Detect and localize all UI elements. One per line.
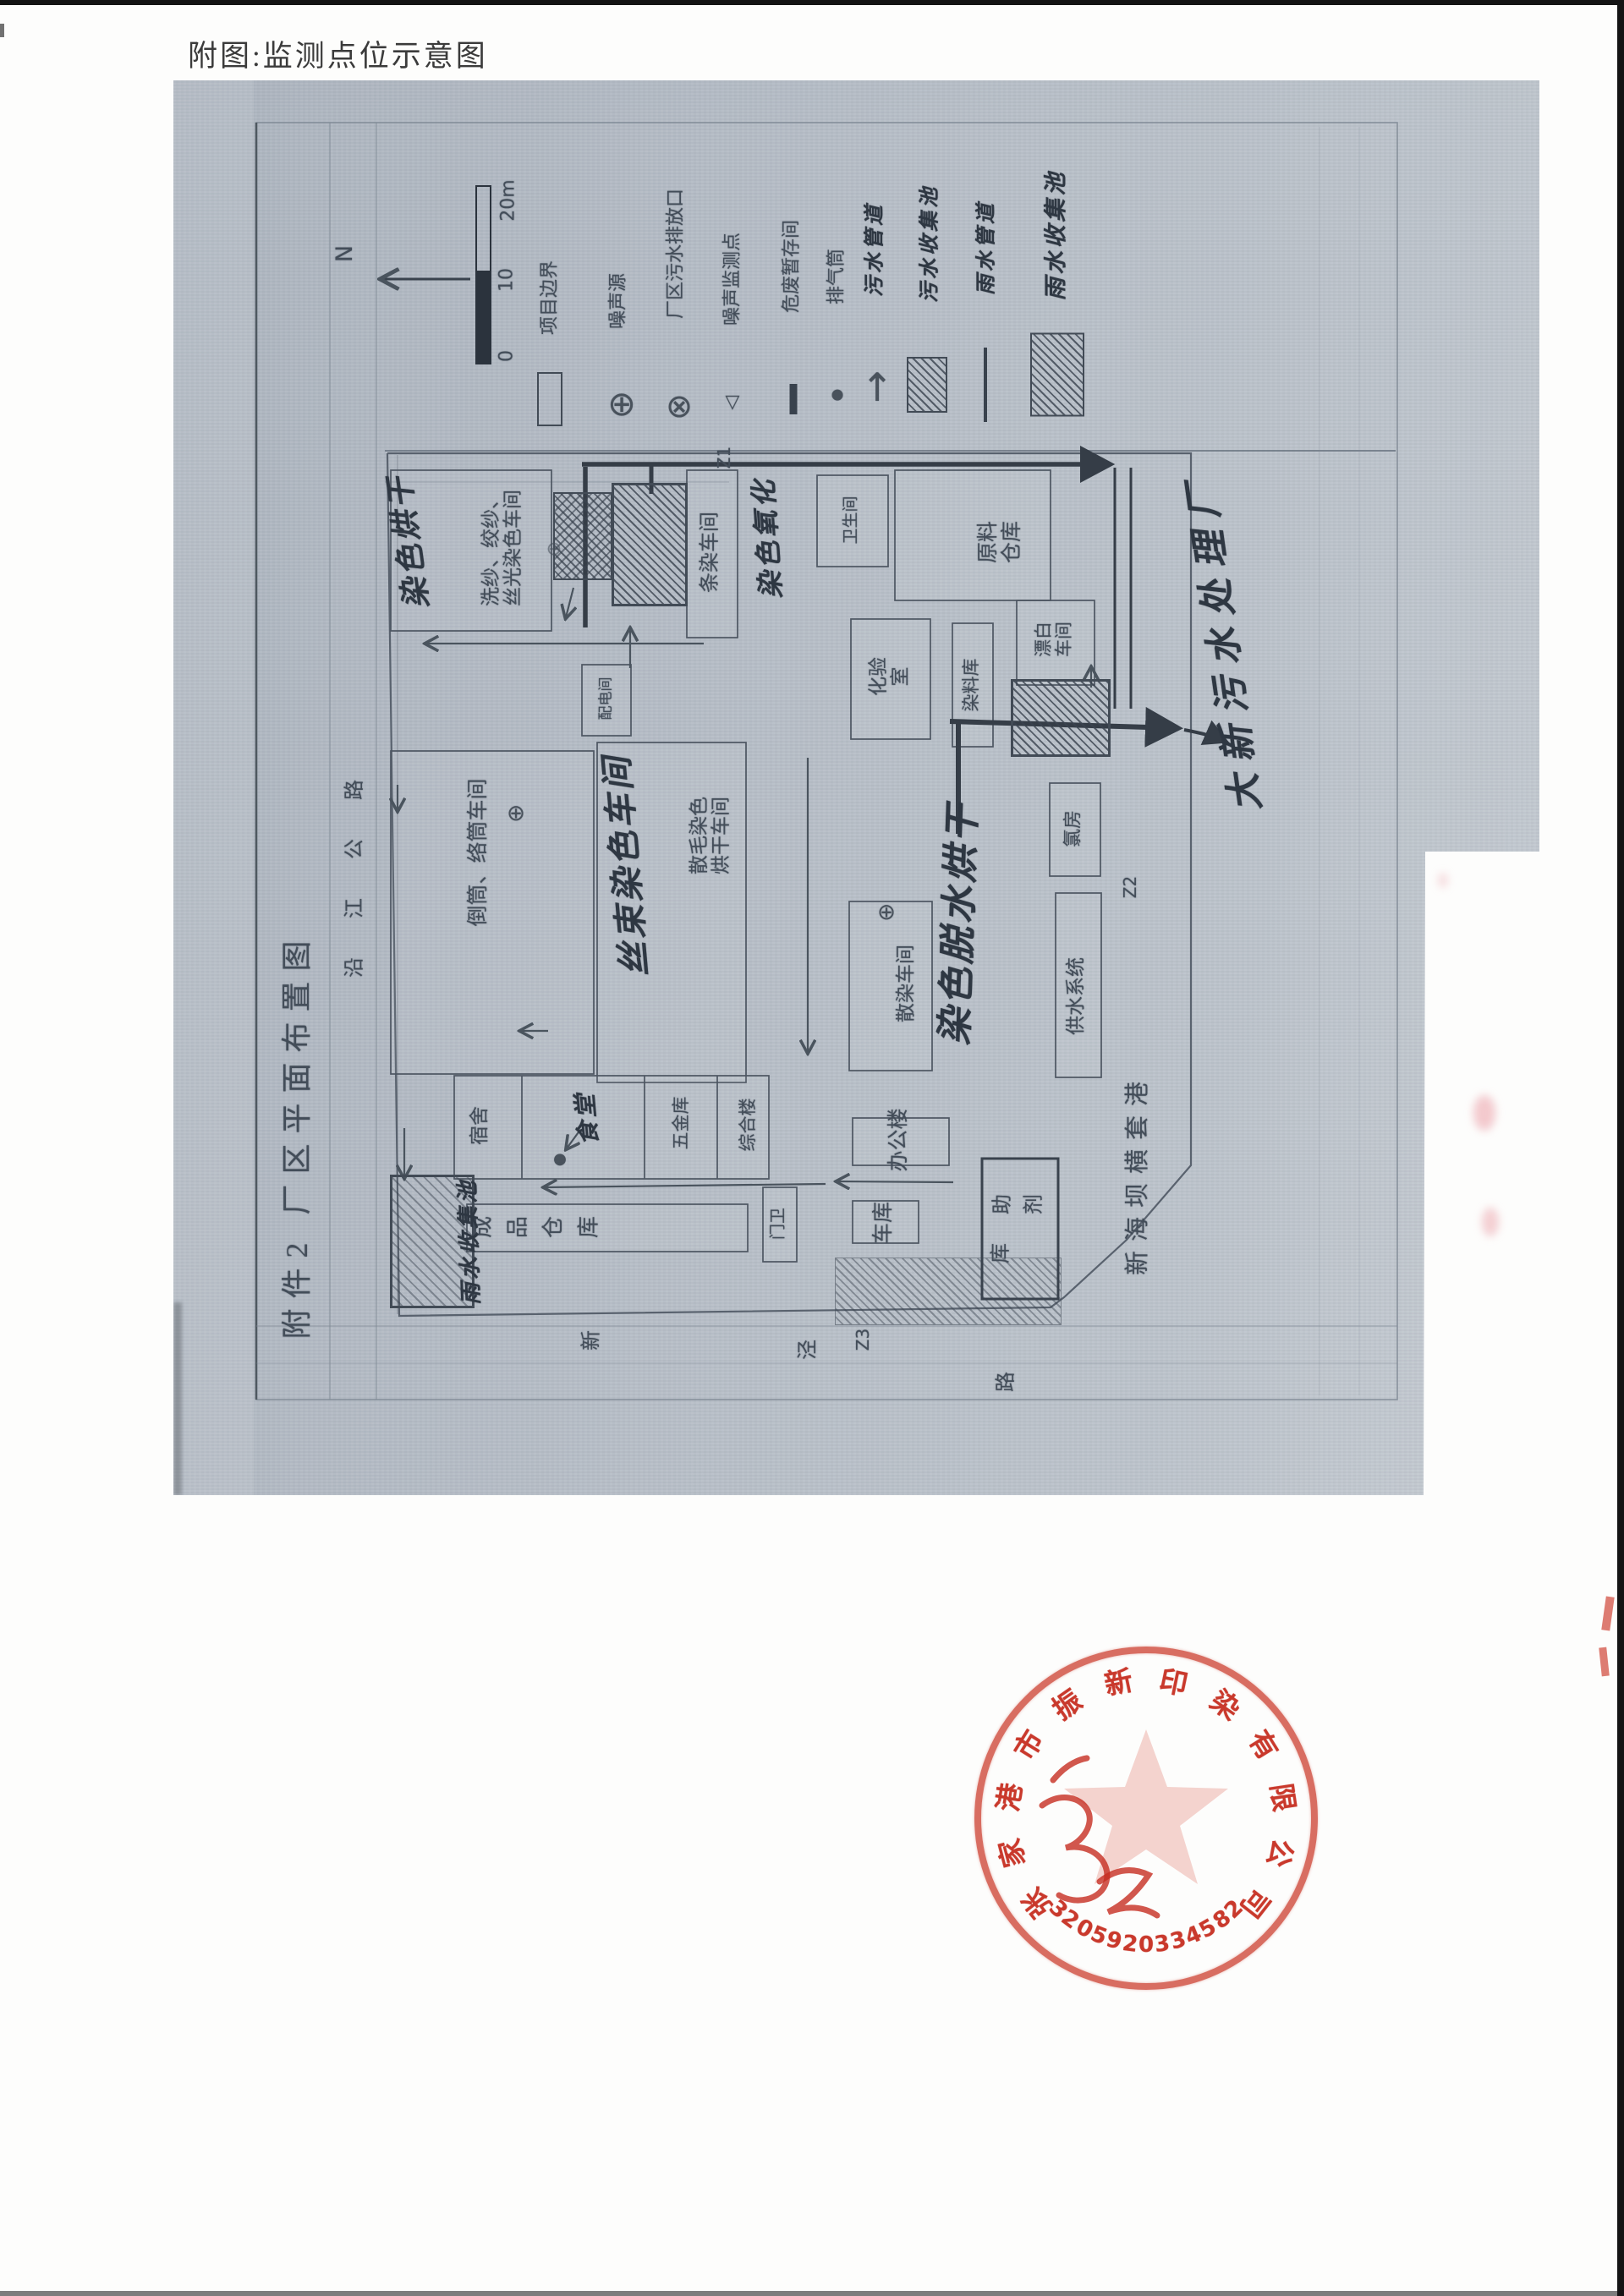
red-margin-mark	[1599, 1647, 1610, 1677]
legend-label-noise-monitor: 噪声监测点	[722, 233, 743, 326]
hatched-rect-large-icon	[1030, 333, 1084, 417]
company-stamp: 张家港市振新印染有限公司3205920334582	[973, 1645, 1319, 1992]
z2-label: Z2	[1121, 876, 1139, 898]
ink-smudge	[1473, 1095, 1495, 1131]
waterway-label: 新海坝横套港	[1124, 1072, 1151, 1275]
legend-label-sewage-pool: 污水收集池	[919, 184, 941, 303]
stamp-serial-digit: 2	[1121, 1931, 1139, 1958]
noise-source-icon: ⊕	[877, 901, 896, 923]
circle-plus-icon: ⊕	[607, 387, 636, 421]
bangonglou-label: 办公楼	[887, 1108, 911, 1171]
ink-smudge	[1482, 1208, 1499, 1236]
noise-source-icon: ⊕	[546, 540, 562, 559]
chengpin-char: 库	[576, 1216, 601, 1238]
z1-label: Z1	[715, 447, 733, 469]
page-edge-tick	[0, 24, 4, 37]
ranse-tuoshui-label: 染色脱水烘干	[934, 801, 984, 1046]
page-edge-top	[0, 0, 1624, 5]
xisha-label: 洗纱、绞纱、丝光染色车间	[480, 490, 524, 606]
wujinku-label: 五金库	[672, 1097, 692, 1150]
sewage-pool-top	[553, 492, 612, 580]
zonghelou-label: 综合楼	[738, 1099, 759, 1152]
piaobai-label: 漂白车间	[1034, 622, 1073, 657]
zhujiku-char: 助	[992, 1194, 1015, 1214]
scale-label: 0	[497, 350, 518, 362]
scale-label: 10	[497, 268, 518, 292]
north-label: N	[332, 245, 358, 262]
menwei-label: 门卫	[769, 1208, 787, 1240]
noise-source-icon: ⊕	[507, 803, 525, 825]
legend-label-noise-source: 噪声源	[608, 273, 629, 329]
chengpin-char: 品	[505, 1216, 529, 1238]
lvfang-label: 氯房	[1063, 810, 1084, 847]
zhujiku-char: 库	[990, 1243, 1013, 1263]
circle-x-icon: ⊗	[666, 390, 693, 422]
scan-left-light	[173, 80, 254, 1495]
z3-label: Z3	[853, 1329, 872, 1351]
huayan-label: 化验室	[867, 657, 911, 696]
legend-label-hazwaste-room: 危废暂存间	[782, 220, 803, 313]
road-bottom-char: 新	[581, 1330, 604, 1351]
peidian-label: 配电间	[597, 677, 613, 721]
sanmao-label: 散毛染色烘干车间	[688, 797, 732, 874]
triangle-icon: ▽	[726, 393, 740, 412]
rain-pool-top	[612, 483, 688, 606]
thick-dash-icon	[790, 384, 798, 414]
page-edge-right	[1617, 0, 1624, 2296]
chengpin-char: 仓	[540, 1216, 565, 1238]
dot-icon: ●	[831, 388, 844, 403]
weishengjian-label: 卫生间	[842, 496, 859, 544]
daotong-label: 倒筒、络筒车间	[467, 778, 491, 926]
road-bottom-char: 泾	[798, 1340, 820, 1360]
attachment-title: 附件2 厂区平面布置图	[280, 930, 314, 1339]
legend-label-exhaust-stack: 排气筒	[826, 249, 848, 304]
yuanliao-label: 原料仓库	[977, 521, 1024, 563]
arrow-up-icon: ↑	[861, 368, 894, 407]
legend-label-project-boundary: 项目边界	[540, 260, 561, 335]
legend-label-rain-pool: 雨水收集池	[1044, 170, 1069, 301]
tiaoran-label: 条染车间	[700, 512, 722, 593]
red-margin-mark	[1601, 1596, 1614, 1630]
shitang-label: 食堂	[572, 1090, 603, 1147]
ranliaoku-label: 染料库	[962, 659, 982, 712]
exhaust-stack-icon: ●	[553, 1152, 567, 1167]
stamp-serial-digit: 0	[1138, 1932, 1154, 1958]
scanned-document-page: 附图:监测点位示意图	[0, 0, 1624, 2296]
legend-label-sewage-outfall: 厂区污水排放口	[666, 189, 687, 319]
yushui-box-label: 雨水收集池	[456, 1178, 485, 1306]
road-bottom-char: 路	[996, 1372, 1018, 1392]
zhujiku-char: 剂	[1023, 1194, 1046, 1214]
sanran-label: 散染车间	[895, 945, 917, 1022]
cheku-label: 车库	[872, 1202, 896, 1244]
sewage-pool-outfall	[1011, 679, 1111, 757]
legend-label-rain-pipe: 雨水管道	[975, 200, 998, 295]
road-left-label: 沿江公路	[344, 741, 367, 978]
line-icon	[984, 348, 987, 422]
pond-south-strip	[835, 1258, 1062, 1325]
hatched-rect-icon	[907, 357, 947, 413]
gongshui-label: 供水系统	[1065, 957, 1087, 1035]
sushe-label: 宿舍	[469, 1106, 491, 1145]
page-edge-bottom	[0, 2291, 1624, 2296]
rect-outline-icon	[537, 372, 562, 426]
legend-label-sewage-pipe: 污水管道	[864, 202, 886, 297]
page-title: 附图:监测点位示意图	[188, 32, 488, 75]
ink-smudge	[1438, 873, 1448, 888]
scale-label: 20m	[499, 179, 520, 221]
